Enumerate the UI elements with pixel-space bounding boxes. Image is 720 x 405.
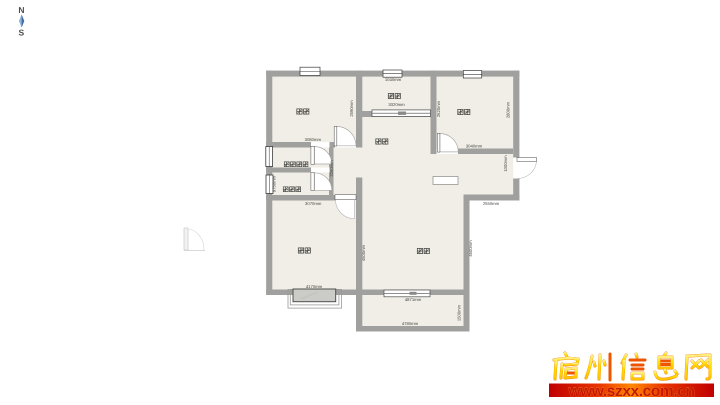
svg-text:1000mm: 1000mm bbox=[503, 155, 508, 172]
svg-text:3070mm: 3070mm bbox=[305, 201, 322, 206]
svg-text:1040mm: 1040mm bbox=[385, 77, 402, 82]
svg-text:2620mm: 2620mm bbox=[436, 100, 441, 117]
svg-text:4170mm: 4170mm bbox=[306, 284, 323, 289]
svg-text:3320mm: 3320mm bbox=[388, 102, 405, 107]
svg-text:4600mm: 4600mm bbox=[468, 240, 473, 257]
svg-text:N: N bbox=[18, 5, 24, 15]
svg-text:3080mm: 3080mm bbox=[305, 137, 322, 142]
svg-text:2250mm: 2250mm bbox=[329, 160, 334, 177]
svg-text:9750mm: 9750mm bbox=[272, 175, 277, 192]
svg-text:1500mm: 1500mm bbox=[456, 304, 461, 321]
svg-text:www.szxx.com.cn: www.szxx.com.cn bbox=[567, 383, 694, 400]
svg-text:4500mm: 4500mm bbox=[361, 244, 366, 261]
svg-text:4780mm: 4780mm bbox=[402, 321, 419, 326]
svg-text:S: S bbox=[18, 27, 24, 37]
svg-text:2800mm: 2800mm bbox=[506, 101, 511, 118]
svg-text:2590mm: 2590mm bbox=[349, 100, 354, 117]
svg-text:2550mm: 2550mm bbox=[483, 201, 500, 206]
svg-text:4871mm: 4871mm bbox=[405, 297, 422, 302]
svg-text:3040mm: 3040mm bbox=[466, 144, 483, 149]
